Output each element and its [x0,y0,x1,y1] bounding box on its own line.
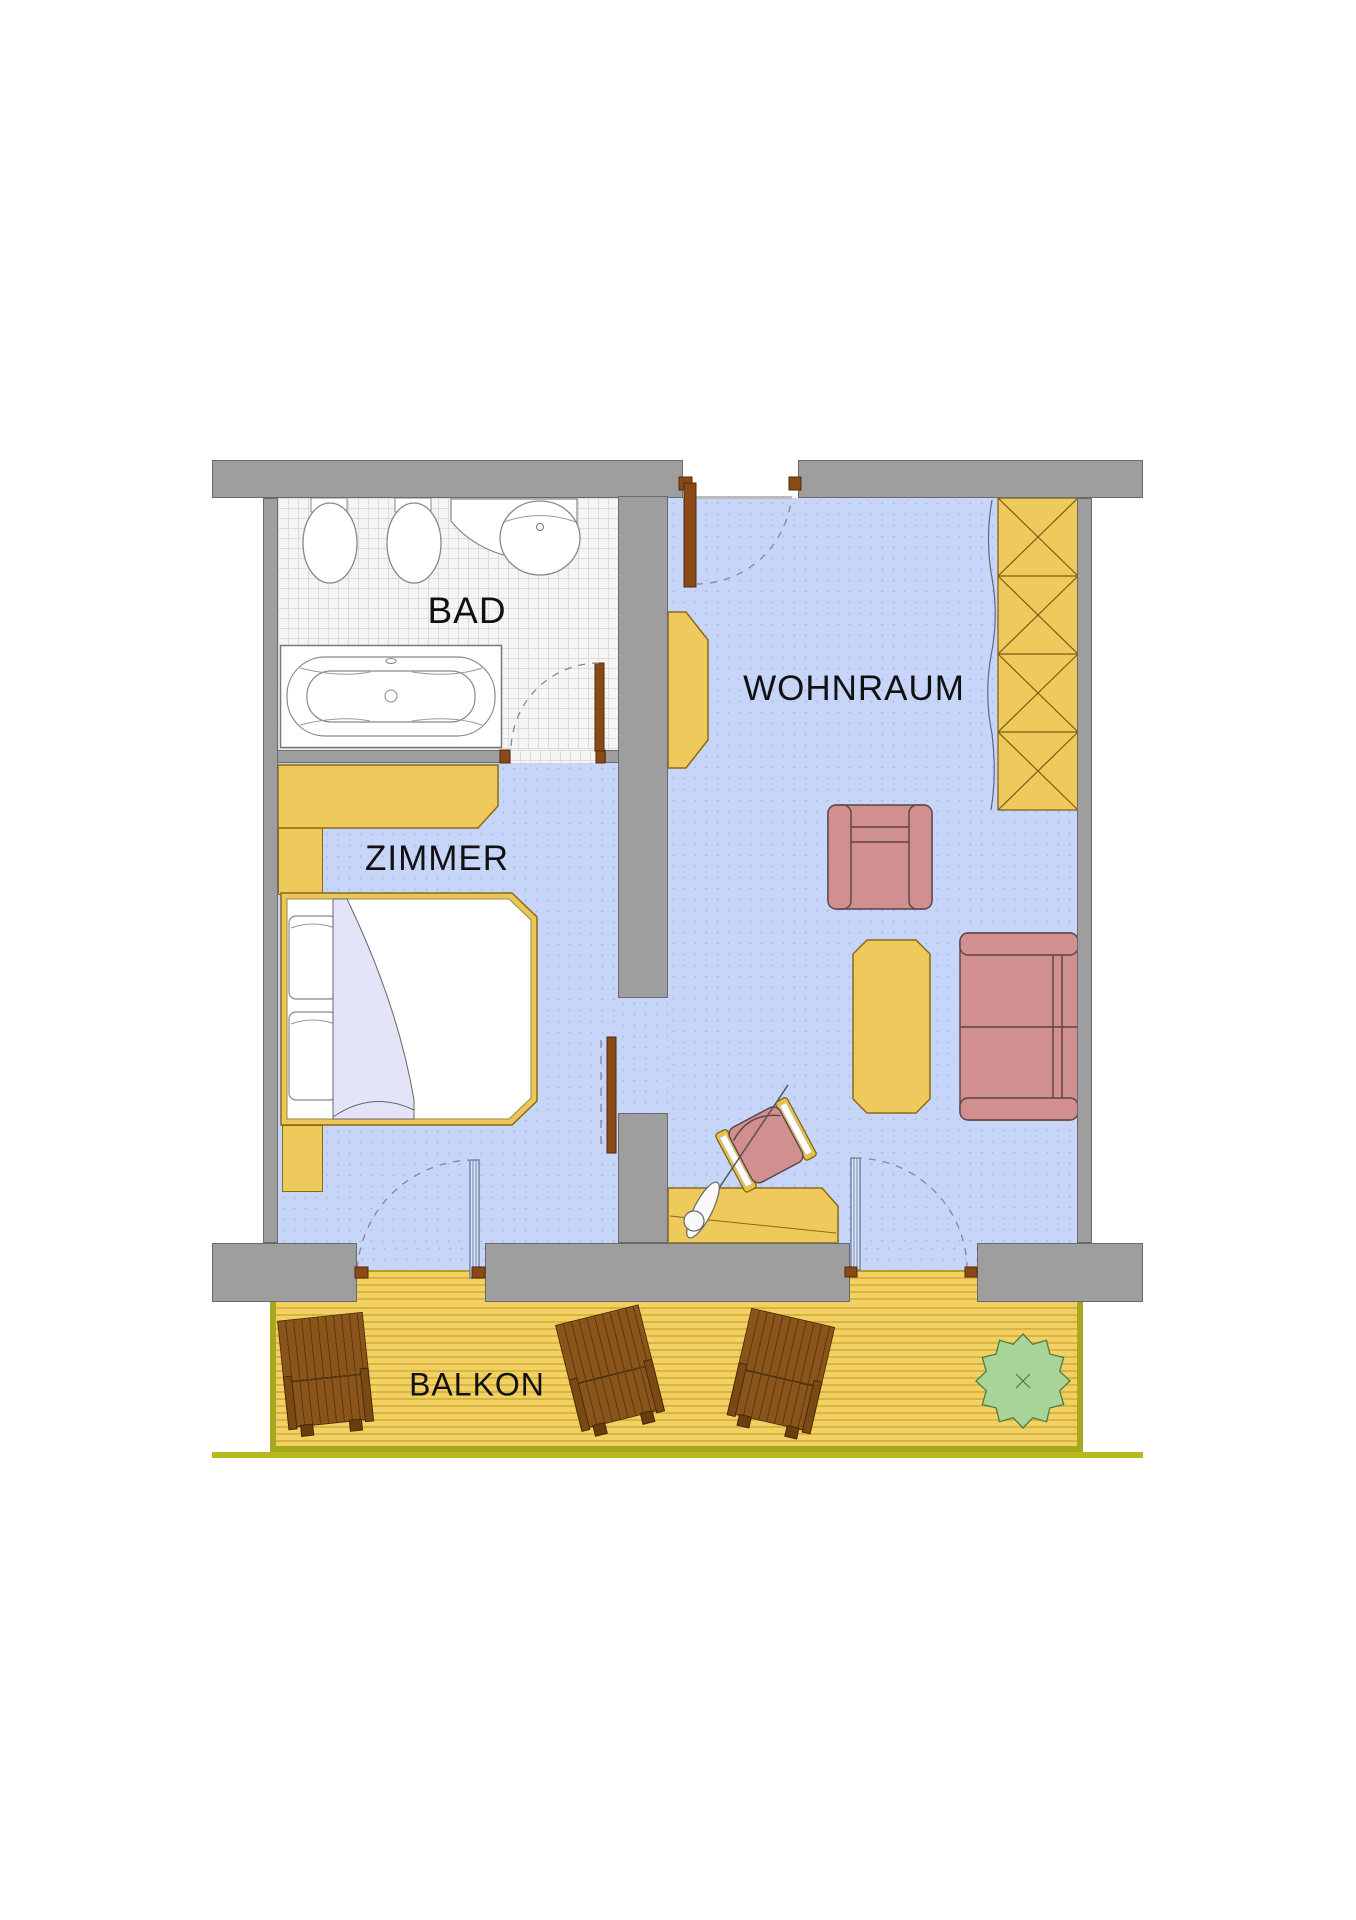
deck-chair-leg [737,1414,752,1429]
deck-chair-leg [300,1424,314,1437]
wall-bottom-right [977,1243,1143,1302]
wall-top-left [212,460,683,498]
balcony-edge-line [212,1452,1143,1458]
livingroom-balcony-gap-floor [850,1243,977,1270]
deck-chair-leg [784,1425,799,1440]
bedroom-balcony-threshold-deck [357,1270,485,1302]
livingroom-floor [668,498,1078,1243]
wall-right [1077,498,1092,1243]
balcony-deck [270,1302,1083,1452]
bedroom-balcony-gap-floor [357,1243,485,1270]
deck-chair-leg [349,1419,363,1432]
entrance-threshold-line [695,496,792,499]
wall-middle-upper [618,496,668,998]
floor-plan-canvas: BAD ZIMMER WOHNRAUM BALKON [0,0,1356,1920]
deck-chair-icon [277,1312,375,1438]
nightstand [282,1125,323,1192]
livingroom-balcony-threshold-deck [850,1270,977,1302]
wall-left [263,498,278,1243]
wall-top-right [798,460,1143,498]
room-door-gap-floor [618,998,668,1113]
bedroom-wardrobe-side [278,826,323,895]
room-label-balkon: BALKON [409,1367,545,1404]
wall-middle-stub [618,1113,668,1243]
wall-bath-bottom-left [277,750,502,763]
deck-chair-back [277,1312,369,1383]
wall-bottom-left [212,1243,357,1302]
bedroom-floor [278,763,618,1243]
room-label-wohnraum: WOHNRAUM [743,669,965,709]
wall-bottom-middle [485,1243,850,1302]
room-label-bad: BAD [427,590,506,632]
bathroom-door-gap-floor [510,750,596,763]
wall-bath-bottom-right [605,750,619,763]
room-label-zimmer: ZIMMER [365,839,509,879]
